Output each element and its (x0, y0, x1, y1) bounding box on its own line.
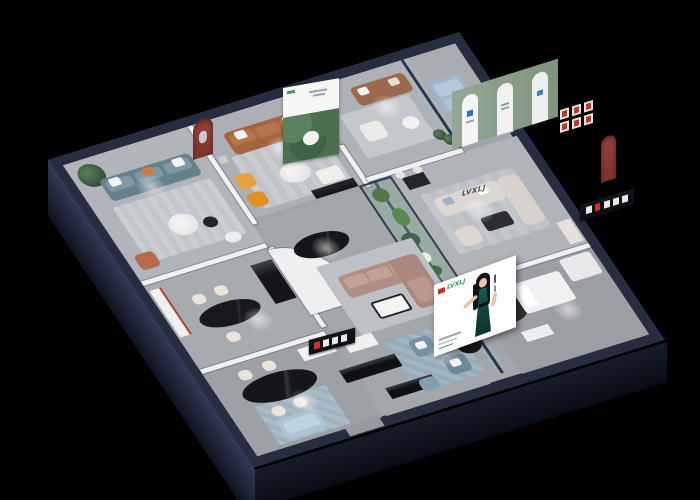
sofa-cushion (365, 266, 393, 283)
white-pillow (356, 86, 370, 96)
red-frame (572, 104, 581, 117)
red-frame (572, 117, 581, 130)
white-pillow (414, 340, 428, 350)
red-frame (560, 120, 569, 133)
blue-pillow (441, 196, 455, 206)
forest-mural-panel (283, 78, 339, 164)
sign-glyph (613, 197, 619, 206)
arch-niche (497, 81, 513, 136)
showroom-render: LVXLJ LVXLJ (0, 0, 700, 500)
niche-sculpture (199, 130, 207, 144)
sofa-cushion (342, 273, 370, 290)
red-frame (560, 107, 569, 120)
sign-glyph-red (595, 203, 600, 212)
hostess-figure (468, 268, 498, 343)
arch-niche (462, 92, 478, 147)
arch-caption-line (466, 119, 474, 123)
red-frame (584, 100, 593, 113)
sign-glyph (604, 200, 610, 209)
terrarium-plant (389, 206, 413, 227)
sign-glyph (341, 334, 347, 343)
chaise-cushion (281, 413, 321, 435)
sign-glyph (586, 205, 592, 214)
beige-pillow (387, 77, 401, 87)
hanging-brand-sign (580, 188, 634, 221)
red-frame (584, 113, 593, 126)
mural-brand-mark (287, 90, 295, 94)
blue-brand-logo (537, 89, 543, 96)
blue-brand-logo (467, 109, 473, 117)
mural-caption-line (313, 93, 325, 97)
red-arch-niche (193, 116, 213, 160)
arch-caption-line (501, 106, 509, 110)
sign-glyph (332, 336, 338, 345)
billboard-red-mark (438, 287, 445, 295)
sign-glyph-red (314, 341, 320, 350)
cactus-plant (369, 186, 393, 204)
sign-glyph (622, 194, 628, 203)
sign-glyph (323, 339, 329, 348)
red-frames-wall-art (560, 100, 594, 136)
red-arch-niche (601, 133, 616, 183)
hostess-arm-bent (490, 293, 497, 307)
arch-niche (532, 70, 548, 125)
billboard-logo-script: LVXLJ (447, 278, 465, 292)
